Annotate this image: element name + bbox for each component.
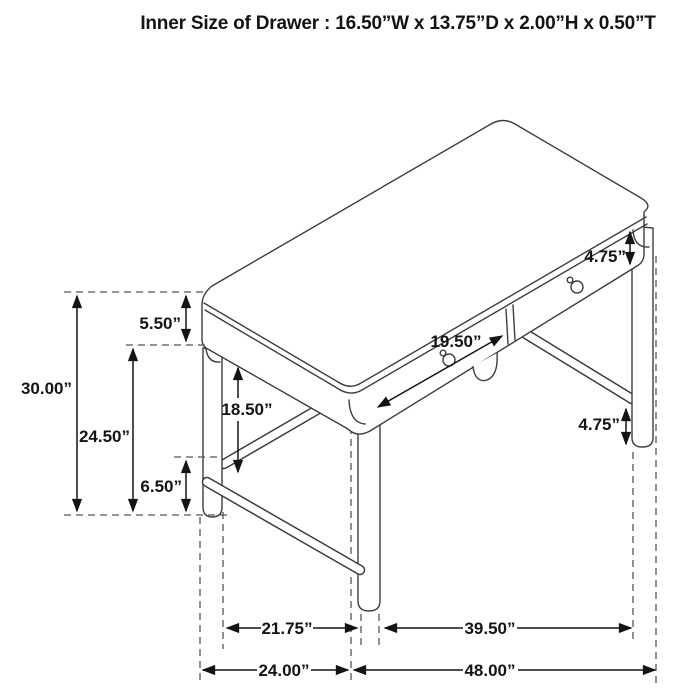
dimension-label-side-leg-spacing: 21.75” — [261, 619, 312, 638]
dimension-floor-to-stretcher: 6.50” — [140, 461, 186, 511]
dimension-label-stretcher-to-leg-bottom: 4.75” — [578, 415, 620, 434]
dimension-label-drawer-band-height: 4.75” — [584, 247, 626, 266]
dimension-label-clearance: 18.50” — [221, 400, 272, 419]
dimension-label-floor-to-apron: 24.50” — [79, 427, 130, 446]
desk-drawing — [202, 121, 653, 612]
dimension-label-overall-height: 30.00” — [21, 379, 72, 398]
dimension-overall-depth: 24.00” — [203, 661, 348, 680]
left-stretcher — [207, 482, 360, 570]
front-left-leg — [358, 422, 380, 611]
diagram-title: Inner Size of Drawer : 16.50”W x 13.75”D… — [140, 13, 656, 34]
dimension-stretcher-to-leg-bottom: 4.75” — [578, 409, 626, 444]
dimension-floor-to-apron: 24.50” — [79, 349, 133, 511]
dimension-side-leg-spacing: 21.75” — [227, 619, 357, 638]
dimension-label-overall-depth: 24.00” — [258, 661, 309, 680]
dimension-label-top-band: 5.50” — [139, 314, 181, 333]
dimension-label-front-leg-spacing: 39.50” — [464, 619, 515, 638]
right-stretcher — [516, 328, 632, 399]
dimension-label-drawer-width: 19.50” — [430, 332, 481, 351]
dimension-overall-height: 30.00” — [21, 296, 77, 511]
desk-dimension-diagram: Inner Size of Drawer : 16.50”W x 13.75”D… — [0, 0, 700, 700]
dimension-overall-width: 48.00” — [354, 661, 655, 680]
diagram-page: Inner Size of Drawer : 16.50”W x 13.75”D… — [0, 0, 700, 700]
dimension-top-band: 5.50” — [139, 296, 186, 341]
desk-body — [202, 121, 648, 435]
dimension-label-floor-to-stretcher: 6.50” — [140, 477, 182, 496]
dimension-label-overall-width: 48.00” — [464, 661, 515, 680]
dimension-front-leg-spacing: 39.50” — [385, 619, 631, 638]
